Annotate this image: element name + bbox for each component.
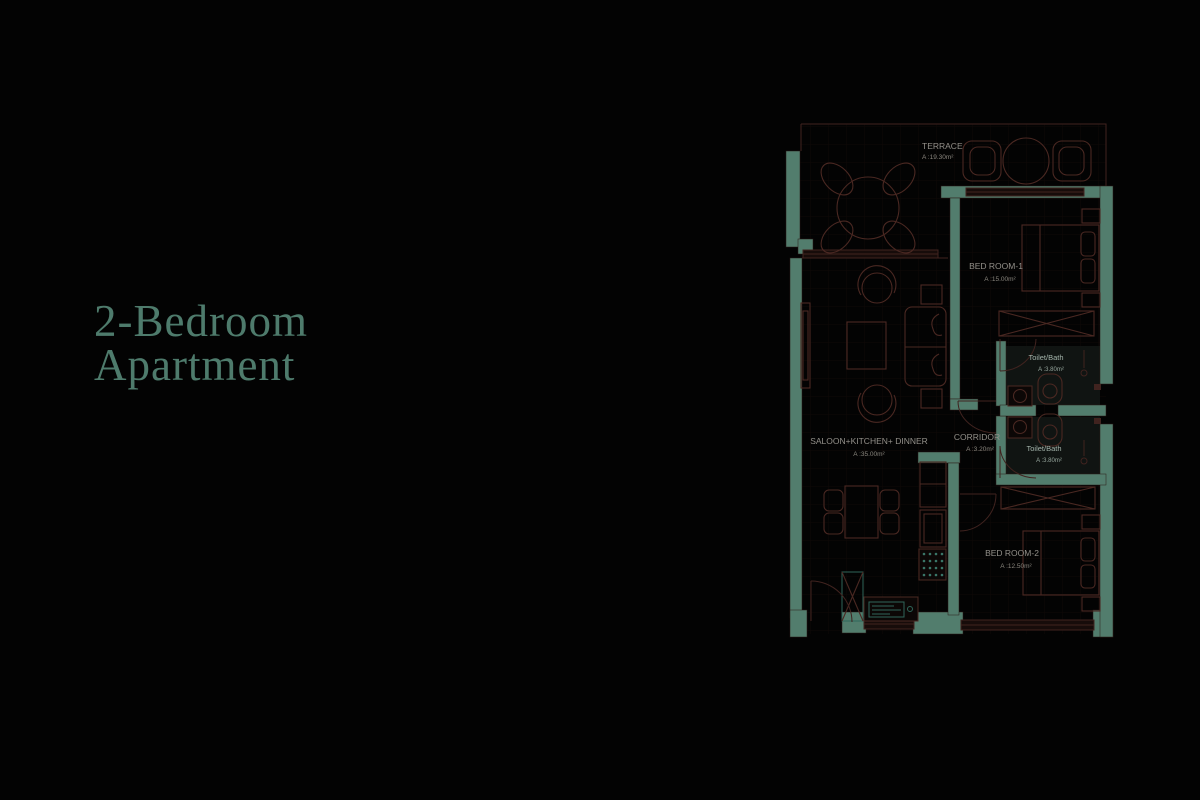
corridor-label: CORRIDOR <box>954 432 1000 442</box>
bedroom-1-label: BED ROOM-1 <box>969 261 1023 271</box>
title-line-2: Apartment <box>94 343 308 387</box>
toilet-bath-2-label: Toilet/Bath <box>1026 444 1061 453</box>
terrace-area: A :19.30m² <box>922 154 954 161</box>
bedroom-2-window <box>961 620 1094 630</box>
saloon-area: A :35.00m² <box>853 451 885 458</box>
title-line-1: 2-Bedroom <box>94 299 308 343</box>
wash-basin-icon <box>1008 417 1032 438</box>
bedroom-2-label: BED ROOM-2 <box>985 548 1039 558</box>
terrace-label: TERRACE <box>922 141 963 151</box>
toilet-bath-1-label: Toilet/Bath <box>1028 353 1063 362</box>
saloon-label: SALOON+KITCHEN+ DINNER <box>810 436 928 446</box>
bedroom-1-area: A :15.00m² <box>984 276 1016 283</box>
bedroom-1-window <box>966 188 1084 196</box>
apartment-title: 2-Bedroom Apartment <box>94 299 308 387</box>
bedroom-2-area: A :12.50m² <box>1000 563 1032 570</box>
kitchen-sink-counter-icon <box>864 597 918 621</box>
stove-icon <box>919 549 946 580</box>
toilet-bath-1-area: A :3.80m² <box>1038 367 1064 373</box>
floor-plan: TERRACE A :19.30m² BED ROOM-1 A :15.00m²… <box>779 110 1124 650</box>
wash-basin-icon <box>1008 386 1032 406</box>
terrace-railing <box>803 250 938 258</box>
toilet-bath-2-area: A :3.80m² <box>1036 458 1062 464</box>
corridor-area: A :3.20m² <box>966 446 995 453</box>
